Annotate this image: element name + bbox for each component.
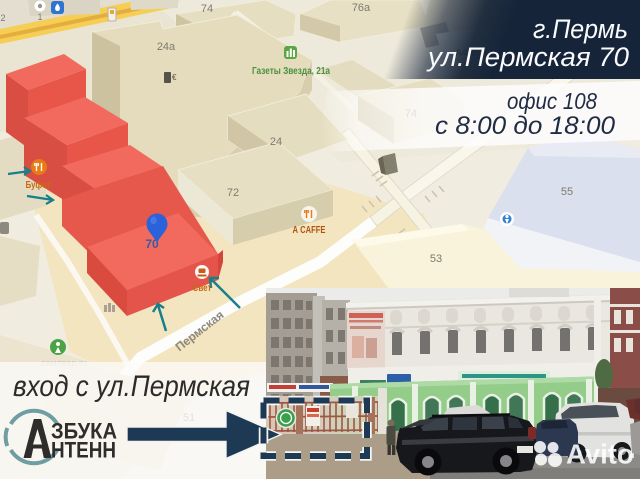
svg-text:Газеты Звезда, 21а: Газеты Звезда, 21а — [252, 65, 330, 77]
svg-text:55: 55 — [561, 186, 573, 198]
svg-text:53: 53 — [430, 253, 442, 265]
svg-text:А CAFFE: А CAFFE — [293, 224, 326, 236]
svg-text:1: 1 — [37, 12, 42, 22]
svg-text:НТЕНН: НТЕНН — [51, 438, 116, 463]
svg-text:г.Пермь: г.Пермь — [533, 14, 628, 44]
svg-text:€: € — [172, 73, 177, 82]
svg-text:2: 2 — [0, 13, 5, 23]
svg-text:Буфет: Буфет — [26, 179, 51, 191]
svg-text:вход с ул.Пермская: вход с ул.Пермская — [13, 370, 250, 403]
svg-text:24а: 24а — [157, 41, 176, 53]
svg-text:с 8:00 до 18:00: с 8:00 до 18:00 — [435, 112, 615, 140]
svg-text:Свет: Свет — [193, 282, 212, 294]
svg-text:24: 24 — [270, 136, 282, 148]
svg-text:офис 108: офис 108 — [507, 88, 597, 114]
svg-text:72: 72 — [227, 187, 239, 199]
svg-text:ул.Пермская 70: ул.Пермская 70 — [426, 42, 629, 72]
svg-text:74: 74 — [201, 3, 213, 15]
svg-text:Avito: Avito — [566, 439, 634, 470]
